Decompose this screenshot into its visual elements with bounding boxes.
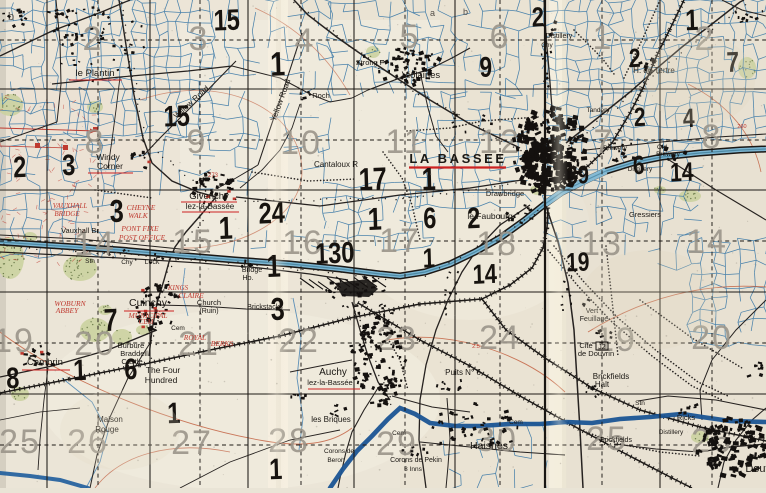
svg-text:1: 1 [73, 353, 87, 387]
svg-text:273: 273 [208, 173, 219, 179]
svg-text:1: 1 [218, 211, 233, 247]
svg-text:Cem: Cem [171, 325, 185, 332]
svg-text:VAUXHALL: VAUXHALL [53, 202, 88, 210]
svg-text:14: 14 [686, 223, 728, 261]
svg-text:1: 1 [269, 452, 283, 486]
svg-text:1: 1 [685, 3, 699, 37]
svg-text:3 Inns: 3 Inns [404, 466, 422, 473]
svg-text:m: m [380, 59, 385, 65]
svg-text:Stn: Stn [635, 400, 645, 407]
svg-text:Chy: Chy [541, 42, 553, 49]
svg-text:Brewery: Brewery [603, 145, 628, 152]
svg-text:Cantaloux R: Cantaloux R [314, 160, 358, 169]
svg-text:Ricks: Ricks [677, 413, 696, 422]
svg-text:1: 1 [367, 202, 382, 238]
svg-text:POST OFFICE: POST OFFICE [118, 233, 166, 242]
svg-text:Douvr: Douvr [745, 463, 766, 475]
svg-text:Brickfields: Brickfields [600, 437, 632, 444]
svg-text:ABBEY: ABBEY [55, 306, 79, 315]
svg-text:PONT FIXE: PONT FIXE [120, 224, 159, 233]
svg-text:Bridge: Bridge [242, 267, 262, 274]
svg-text:15: 15 [172, 223, 214, 261]
svg-text:Halt: Halt [595, 380, 610, 389]
svg-text:2: 2 [629, 43, 641, 73]
svg-text:3: 3 [62, 148, 76, 182]
svg-text:lez-la-Bassée: lez-la-Bassée [307, 378, 352, 387]
svg-text:15: 15 [163, 99, 190, 133]
svg-text:Stn: Stn [85, 258, 95, 265]
svg-text:6: 6 [124, 352, 138, 386]
svg-text:23: 23 [376, 320, 418, 358]
svg-text:Givenchy: Givenchy [189, 191, 229, 202]
svg-text:le Plantin: le Plantin [75, 68, 114, 79]
svg-text:b: b [463, 7, 468, 17]
svg-text:7: 7 [594, 123, 615, 161]
svg-text:1: 1 [270, 45, 286, 83]
svg-text:Corons de: Corons de [324, 448, 354, 455]
svg-text:WALK: WALK [128, 211, 148, 220]
svg-text:Lock: Lock [145, 259, 160, 266]
svg-text:4: 4 [295, 22, 316, 60]
svg-text:Tandery: Tandery [586, 107, 610, 114]
svg-text:8: 8 [6, 361, 20, 395]
svg-text:3: 3 [109, 194, 124, 230]
svg-text:Distillery: Distillery [546, 33, 573, 40]
svg-text:(Ruin): (Ruin) [199, 308, 218, 315]
svg-text:260: 260 [737, 124, 746, 130]
svg-text:3: 3 [270, 292, 285, 328]
svg-text:14: 14 [670, 157, 695, 188]
svg-text:17: 17 [379, 222, 421, 260]
svg-text:Corner: Corner [97, 161, 123, 171]
svg-text:Cuinchy: Cuinchy [129, 297, 168, 309]
svg-text:2: 2 [467, 201, 481, 235]
svg-text:BERKS: BERKS [211, 339, 234, 348]
svg-text:BRIDGE: BRIDGE [54, 210, 80, 218]
svg-text:CLAIRE: CLAIRE [178, 291, 204, 300]
svg-text:a: a [430, 8, 435, 18]
svg-text:15: 15 [213, 3, 240, 37]
svg-text:1: 1 [266, 249, 281, 285]
svg-text:Chy: Chy [121, 259, 133, 266]
svg-text:The Four: The Four [146, 365, 181, 375]
svg-text:9: 9 [479, 52, 492, 84]
svg-text:6: 6 [490, 18, 511, 56]
svg-text:les Briques: les Briques [311, 415, 351, 424]
svg-text:6: 6 [633, 150, 645, 180]
svg-text:2: 2 [634, 102, 646, 132]
svg-text:1: 1 [593, 19, 614, 57]
svg-text:Corons de Pekin: Corons de Pekin [390, 457, 442, 464]
svg-text:Puits N° 6: Puits N° 6 [445, 368, 481, 377]
svg-text:Vauxhall Br: Vauxhall Br [61, 226, 99, 235]
svg-text:3: 3 [189, 20, 210, 58]
svg-text:Hundred: Hundred [145, 375, 178, 385]
svg-text:17: 17 [358, 161, 387, 198]
svg-text:130: 130 [315, 236, 355, 271]
svg-text:19: 19 [0, 322, 35, 360]
svg-text:Old: Old [657, 144, 668, 151]
svg-text:39: 39 [566, 160, 589, 190]
svg-text:1: 1 [422, 243, 435, 275]
svg-text:Cem: Cem [509, 419, 523, 426]
svg-text:CEM: CEM [139, 318, 155, 326]
svg-text:6: 6 [423, 201, 437, 235]
svg-text:2: 2 [531, 2, 544, 34]
svg-text:2.5: 2.5 [472, 344, 480, 350]
svg-text:de Douvrin: de Douvrin [578, 349, 614, 358]
svg-text:2: 2 [13, 150, 27, 184]
svg-text:1: 1 [421, 162, 436, 198]
svg-text:Auchy: Auchy [319, 367, 347, 378]
svg-text:Gressiers: Gressiers [629, 210, 661, 219]
svg-text:Haisnes: Haisnes [470, 440, 508, 452]
svg-text:25: 25 [0, 423, 41, 461]
svg-text:lez-la-Bassée: lez-la-Bassée [186, 202, 235, 211]
svg-text:24: 24 [258, 196, 285, 230]
svg-text:18: 18 [476, 225, 518, 263]
svg-text:Drawbridge: Drawbridge [486, 189, 524, 198]
svg-text:Ho.: Ho. [243, 275, 254, 282]
svg-text:Roch: Roch [312, 91, 330, 100]
svg-text:14: 14 [472, 258, 497, 290]
svg-text:Distillery: Distillery [659, 429, 684, 436]
svg-text:19: 19 [566, 247, 590, 278]
svg-text:24: 24 [479, 319, 521, 357]
svg-text:ROYAL: ROYAL [183, 333, 206, 342]
svg-text:Cem: Cem [392, 430, 406, 437]
svg-text:Cambrin: Cambrin [27, 357, 63, 368]
svg-text:Violaines: Violaines [402, 70, 441, 81]
